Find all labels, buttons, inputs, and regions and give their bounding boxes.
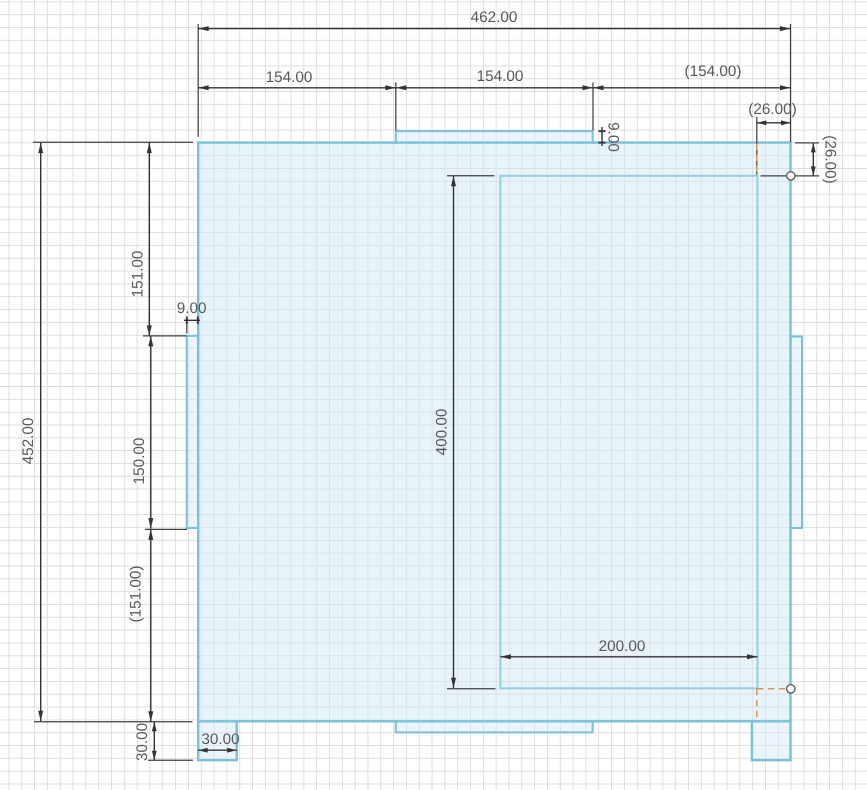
svg-text:154.00: 154.00 [266, 69, 313, 86]
svg-text:(151.00): (151.00) [128, 566, 145, 623]
svg-text:30.00: 30.00 [201, 731, 239, 748]
svg-text:(26.00): (26.00) [748, 101, 796, 118]
svg-text:452.00: 452.00 [20, 418, 37, 465]
svg-text:462.00: 462.00 [471, 9, 518, 26]
svg-text:150.00: 150.00 [131, 438, 148, 485]
svg-text:9.00: 9.00 [177, 300, 207, 317]
svg-text:200.00: 200.00 [599, 638, 646, 655]
svg-text:(26.00): (26.00) [822, 135, 839, 183]
svg-text:30.00: 30.00 [134, 723, 151, 761]
svg-text:154.00: 154.00 [477, 68, 524, 85]
svg-text:400.00: 400.00 [434, 409, 451, 456]
svg-text:151.00: 151.00 [130, 251, 147, 298]
svg-text:(154.00): (154.00) [685, 63, 742, 80]
svg-text:9.00: 9.00 [605, 122, 622, 152]
